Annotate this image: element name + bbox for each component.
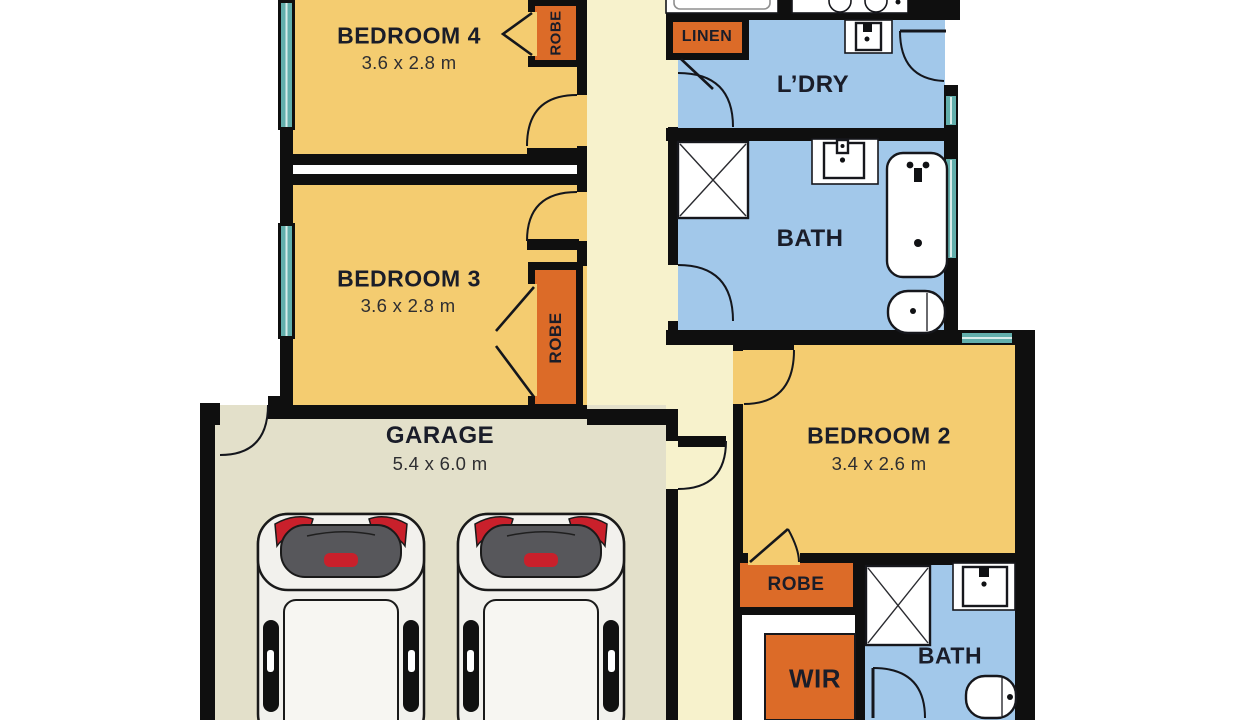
car-icon bbox=[258, 514, 424, 720]
wall-cavity bbox=[293, 165, 577, 174]
shower-icon bbox=[678, 142, 748, 218]
robe-bed4 bbox=[535, 6, 576, 60]
bench-divider bbox=[778, 0, 792, 13]
tap bbox=[979, 567, 989, 577]
wall bbox=[944, 259, 958, 342]
garage-floor bbox=[220, 405, 268, 419]
bedroom2-floor bbox=[733, 332, 1015, 556]
wall bbox=[268, 396, 286, 419]
shower-icon bbox=[866, 566, 930, 645]
floor-plan-drawing bbox=[0, 0, 1240, 720]
wall bbox=[200, 403, 215, 720]
window-glass-line bbox=[950, 160, 952, 257]
tap-dot bbox=[923, 162, 930, 169]
robe-bed2 bbox=[740, 563, 853, 607]
flush-button bbox=[1007, 694, 1013, 700]
wall bbox=[200, 403, 220, 425]
wall bbox=[733, 404, 743, 556]
car-icon bbox=[458, 514, 624, 720]
wall bbox=[280, 174, 587, 185]
drain bbox=[840, 157, 845, 162]
window-glass-line bbox=[286, 3, 288, 127]
window-glass-line bbox=[950, 97, 952, 124]
wall bbox=[668, 127, 678, 265]
drain bbox=[914, 239, 922, 247]
window-glass-line bbox=[962, 337, 1012, 339]
drain bbox=[865, 37, 870, 42]
robe-bed4-opening bbox=[528, 12, 537, 56]
vanity-icon bbox=[812, 139, 878, 184]
bathtub-icon bbox=[887, 153, 947, 277]
door-leaf bbox=[678, 436, 726, 447]
wall bbox=[587, 409, 678, 425]
tap-dot bbox=[907, 162, 914, 169]
hallway-floor bbox=[666, 441, 678, 489]
tap-dot bbox=[841, 144, 845, 148]
wall bbox=[666, 489, 678, 720]
drain bbox=[981, 581, 986, 586]
sink-icon bbox=[953, 563, 1015, 610]
window-glass-line bbox=[286, 226, 288, 336]
wall bbox=[733, 607, 742, 720]
wall bbox=[943, 0, 960, 20]
toilet bbox=[888, 291, 945, 333]
door-leaf bbox=[743, 339, 794, 350]
wall bbox=[944, 126, 958, 158]
kitchen-bench bbox=[666, 0, 944, 15]
bench-divider bbox=[908, 0, 944, 15]
tap bbox=[863, 23, 872, 32]
flush-button bbox=[910, 308, 916, 314]
hallway-floor bbox=[587, 342, 743, 409]
linen-cupboard bbox=[673, 22, 742, 53]
floor-plan: BEDROOM 4 3.6 x 2.8 m BEDROOM 3 3.6 x 2.… bbox=[0, 0, 1240, 720]
toilet-icon bbox=[888, 291, 945, 333]
robe-bed3-opening bbox=[528, 284, 537, 396]
toilet-icon bbox=[966, 676, 1016, 718]
wir-robe bbox=[765, 634, 855, 720]
laundry-trough-icon bbox=[845, 20, 892, 53]
wall bbox=[733, 345, 743, 351]
robe-bed3 bbox=[535, 270, 576, 404]
door-leaf bbox=[527, 148, 579, 160]
tap bbox=[914, 168, 922, 182]
kitchen-sink-icon bbox=[666, 0, 778, 13]
wall bbox=[666, 409, 678, 441]
door-leaf bbox=[527, 239, 579, 250]
wall bbox=[1015, 330, 1035, 720]
